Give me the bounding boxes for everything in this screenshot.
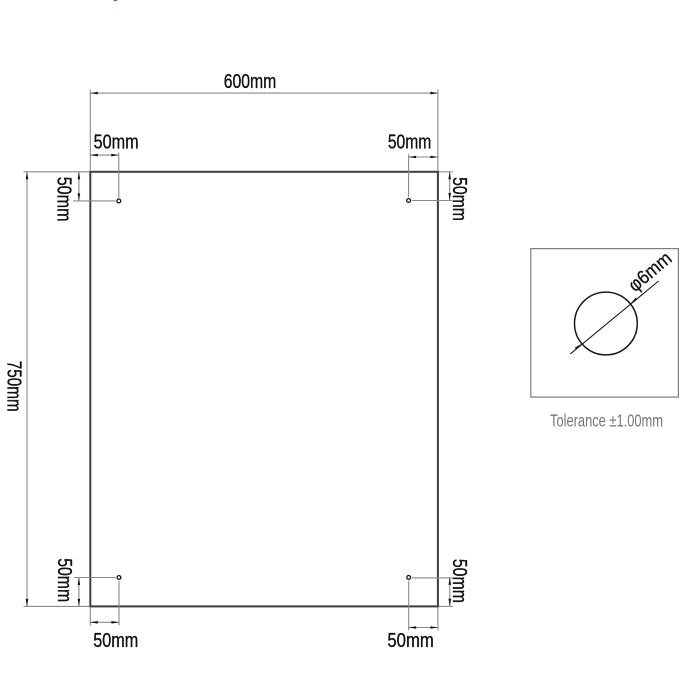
svg-text:600mm: 600mm: [224, 71, 277, 93]
svg-text:50mm: 50mm: [94, 132, 139, 154]
svg-text:Tolerance ±1.00mm: Tolerance ±1.00mm: [550, 411, 663, 431]
svg-text:50mm: 50mm: [53, 558, 75, 602]
svg-text:50mm: 50mm: [387, 630, 433, 652]
svg-text:50mm: 50mm: [93, 630, 138, 652]
svg-text:50mm: 50mm: [388, 132, 432, 154]
svg-text:750mm: 750mm: [3, 361, 25, 412]
svg-text:50mm: 50mm: [448, 177, 470, 221]
svg-text:50mm: 50mm: [53, 177, 75, 222]
svg-text:50mm: 50mm: [448, 559, 470, 603]
